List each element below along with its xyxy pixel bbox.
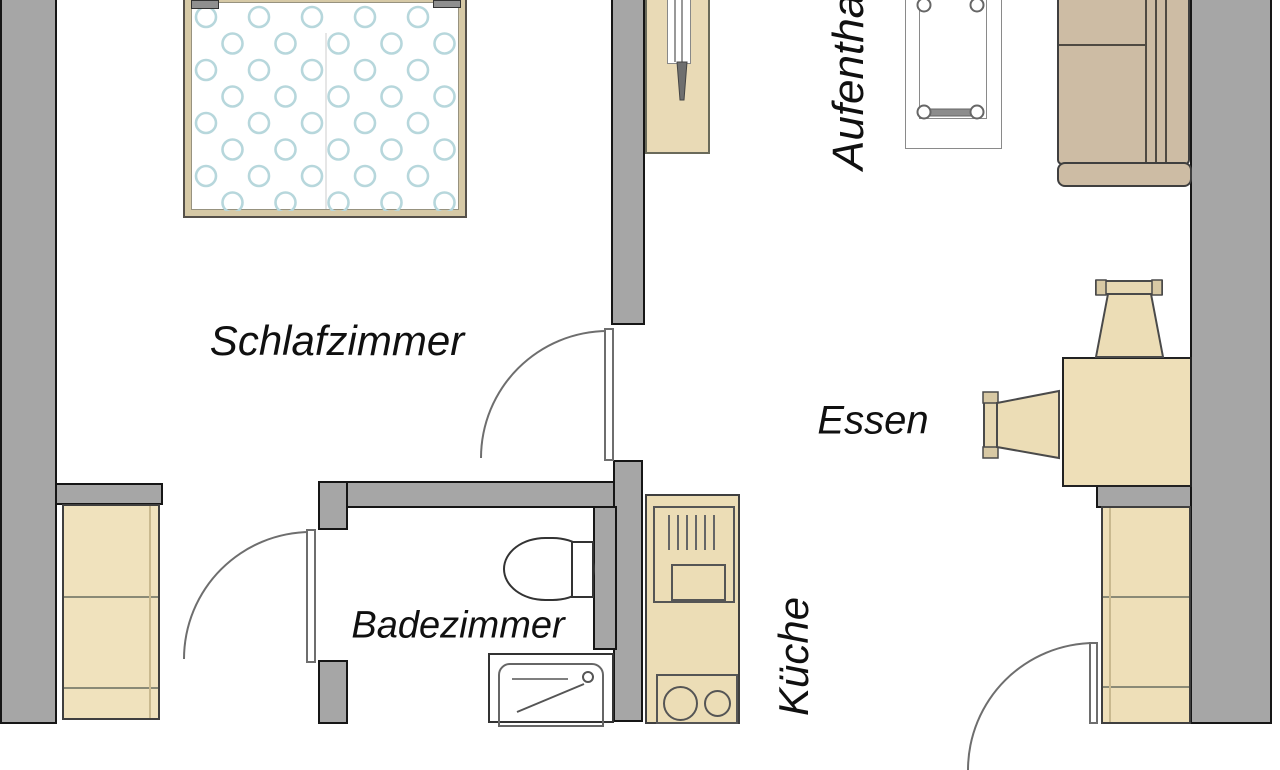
toilet-tank [571, 541, 594, 598]
wall-bathroom-shaft [593, 506, 617, 650]
wall-desk [645, 0, 710, 154]
label-lounge: Aufenthaltsraum [824, 0, 874, 170]
label-dining: Essen [817, 399, 928, 444]
kitchen-door-leaf [1089, 642, 1098, 724]
floor-plan: Schlafzimmer Badezimmer Essen Küche Aufe… [0, 0, 1280, 720]
bed-post-right [433, 0, 461, 8]
bed-post-left [191, 0, 219, 9]
wall-hall-stub [55, 483, 163, 505]
lounge-table [905, 0, 1002, 149]
wall-top-center [611, 0, 645, 325]
stove [656, 674, 738, 724]
kitchen-door-arc [967, 642, 1095, 770]
wall-left [0, 0, 57, 724]
label-bedroom: Schlafzimmer [210, 317, 464, 365]
dining-chair-left [983, 391, 1059, 458]
wall-dining-stub [1096, 485, 1192, 508]
kitchen-unit [645, 494, 740, 724]
wall-bathroom-left-lower [318, 660, 348, 724]
sink-basin [671, 564, 726, 601]
kitchen-sink-module [653, 506, 735, 603]
dining-table [1062, 357, 1192, 487]
sofa [1057, 0, 1190, 165]
bathroom-door-leaf [306, 529, 316, 663]
bathroom-door-arc [183, 531, 311, 659]
bedroom-door-arc [480, 330, 608, 458]
dining-chair-top [1096, 280, 1163, 357]
wall-right [1190, 0, 1272, 724]
wall-bathroom-top [318, 481, 615, 508]
bedroom-door-leaf [604, 328, 614, 461]
wall-kitchen-vertical [613, 460, 643, 722]
shower-drain [582, 671, 594, 683]
stove-burner-small [704, 690, 731, 717]
stove-burner-large [663, 686, 698, 721]
shower [488, 653, 614, 723]
wall-bathroom-left-upper [318, 481, 348, 530]
kitchen-counter-right [1101, 506, 1191, 724]
label-bathroom: Badezimmer [351, 605, 564, 648]
sofa-armrest [1057, 162, 1192, 187]
label-kitchen: Küche [770, 597, 818, 716]
wardrobe [62, 504, 160, 720]
bed [183, 0, 467, 218]
bed-blanket [191, 2, 459, 210]
